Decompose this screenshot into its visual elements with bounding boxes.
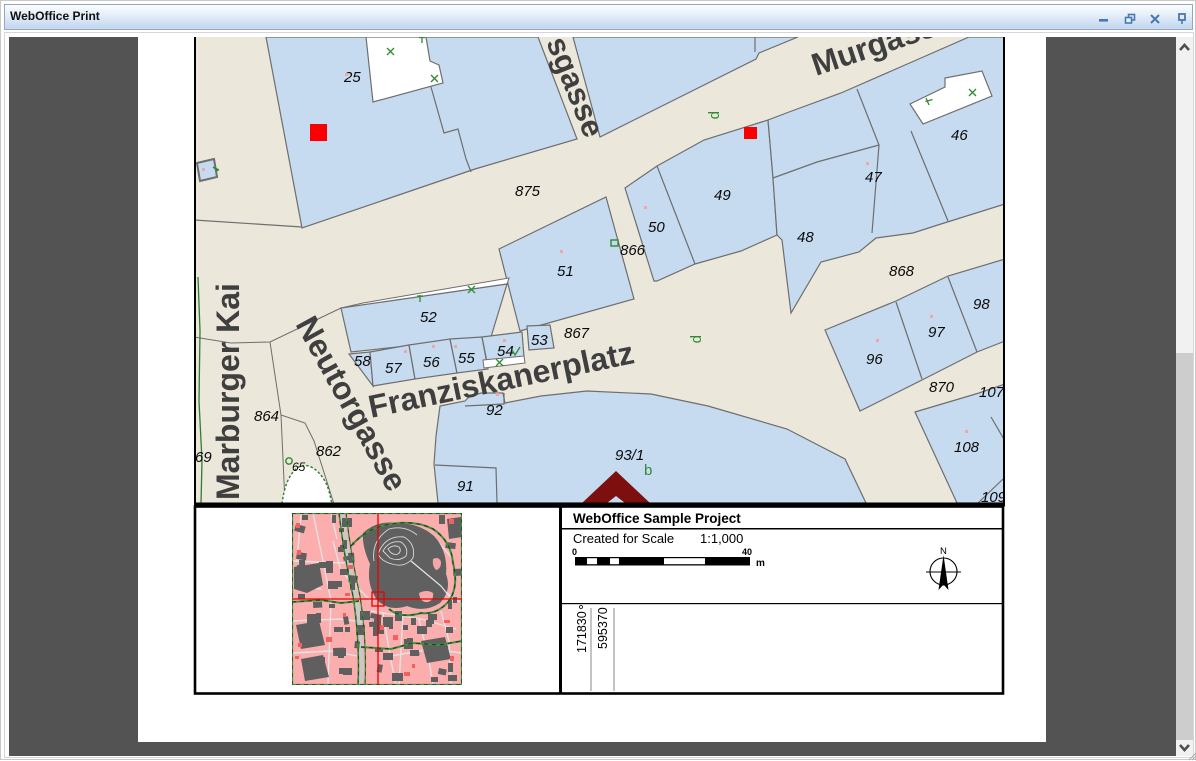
svg-text:96: 96 <box>866 351 883 368</box>
svg-text:870: 870 <box>929 379 955 396</box>
svg-text:m: m <box>756 558 765 569</box>
svg-text:171830: 171830 <box>575 611 589 653</box>
svg-text:WebOffice Sample Project: WebOffice Sample Project <box>573 511 741 526</box>
svg-text:65: 65 <box>292 460 306 474</box>
svg-text:54: 54 <box>497 343 514 360</box>
svg-text:46: 46 <box>951 127 968 144</box>
svg-text:0: 0 <box>572 547 577 557</box>
svg-text:92: 92 <box>486 402 503 419</box>
svg-text:57: 57 <box>385 360 402 377</box>
svg-text:875: 875 <box>515 183 541 200</box>
svg-text:47: 47 <box>865 169 882 186</box>
svg-text:864: 864 <box>254 408 279 425</box>
svg-text:868: 868 <box>889 263 915 280</box>
svg-text:49: 49 <box>714 187 731 204</box>
svg-text:53: 53 <box>531 332 548 349</box>
svg-text:107: 107 <box>979 384 1005 401</box>
svg-text:55: 55 <box>458 350 475 367</box>
svg-text:98: 98 <box>973 296 990 313</box>
svg-text:867: 867 <box>564 325 590 342</box>
svg-text:N: N <box>940 546 947 557</box>
svg-text:862: 862 <box>316 443 342 460</box>
svg-text:51: 51 <box>557 263 574 280</box>
svg-text:Created for Scale: Created for Scale <box>573 531 674 546</box>
svg-text:52: 52 <box>420 309 437 326</box>
svg-text:108: 108 <box>954 439 980 456</box>
svg-text:595370: 595370 <box>596 607 610 649</box>
svg-text:50: 50 <box>648 219 665 236</box>
svg-text:p: p <box>689 335 706 343</box>
svg-text:b: b <box>644 462 652 479</box>
svg-text:48: 48 <box>797 229 814 246</box>
svg-text:69: 69 <box>195 449 212 466</box>
svg-text:p: p <box>707 111 724 119</box>
svg-text:91: 91 <box>457 478 474 495</box>
svg-text:25: 25 <box>343 69 361 86</box>
svg-text:93/1: 93/1 <box>615 447 644 464</box>
svg-text:97: 97 <box>928 324 945 341</box>
svg-text:Marburger Kai: Marburger Kai <box>210 283 246 500</box>
svg-text:58: 58 <box>354 353 371 370</box>
svg-text:40: 40 <box>742 547 752 557</box>
svg-text:56: 56 <box>423 354 440 371</box>
svg-text:866: 866 <box>620 242 646 259</box>
svg-text:1:1,000: 1:1,000 <box>700 531 743 546</box>
